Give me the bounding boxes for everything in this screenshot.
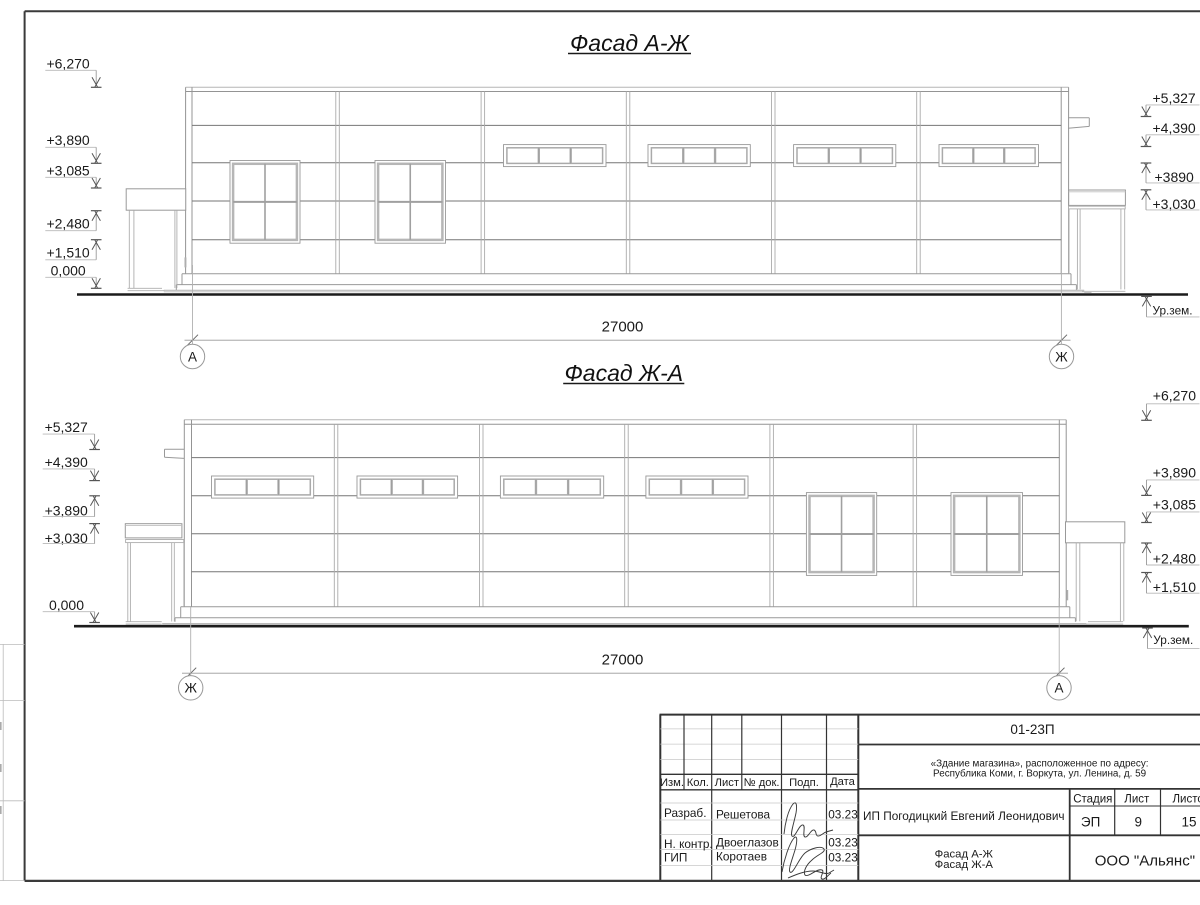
svg-text:№ док.: № док.: [744, 777, 780, 789]
svg-text:Решетова: Решетова: [716, 808, 771, 822]
svg-text:03.23: 03.23: [828, 808, 858, 822]
svg-text:А: А: [188, 349, 197, 364]
svg-text:+5,327: +5,327: [1153, 90, 1196, 106]
svg-text:+6,270: +6,270: [46, 55, 89, 71]
svg-text:Коротаев: Коротаев: [716, 850, 767, 864]
svg-text:+2,480: +2,480: [1153, 551, 1196, 567]
svg-text:Фасад Ж-А: Фасад Ж-А: [935, 859, 994, 871]
svg-text:Стадия: Стадия: [1073, 793, 1112, 805]
svg-text:Ур.зем.: Ур.зем.: [1153, 633, 1193, 647]
svg-text:Фасад А-Ж: Фасад А-Ж: [570, 30, 690, 56]
svg-text:Двоеглазов: Двоеглазов: [716, 835, 779, 849]
svg-text:0,000: 0,000: [49, 597, 84, 613]
svg-text:ЭП: ЭП: [1081, 815, 1100, 830]
svg-text:Фасад Ж-А: Фасад Ж-А: [565, 360, 684, 386]
svg-text:15: 15: [1181, 815, 1196, 830]
svg-text:+5,327: +5,327: [45, 419, 88, 435]
svg-text:Республика Коми, г. Воркута, у: Республика Коми, г. Воркута, ул. Ленина,…: [933, 768, 1147, 779]
svg-text:Лист: Лист: [715, 777, 739, 789]
svg-text:Кол.: Кол.: [687, 777, 709, 789]
svg-text:+2,480: +2,480: [46, 215, 89, 231]
svg-text:ГИП: ГИП: [664, 851, 687, 865]
svg-text:+1,510: +1,510: [1153, 579, 1196, 595]
svg-text:01-23П: 01-23П: [1010, 722, 1054, 737]
svg-text:Дата: Дата: [830, 776, 856, 788]
svg-text:+4,390: +4,390: [45, 454, 88, 470]
svg-text:Н. контр.: Н. контр.: [664, 837, 713, 851]
svg-text:ООО "Альянс": ООО "Альянс": [1095, 852, 1195, 869]
svg-text:Разраб.: Разраб.: [664, 806, 706, 820]
svg-text:+3,890: +3,890: [1153, 464, 1196, 480]
svg-text:Изм.: Изм.: [660, 777, 684, 789]
svg-text:03.23: 03.23: [828, 835, 858, 849]
svg-text:Подп.: Подп.: [789, 777, 819, 789]
svg-text:+1,510: +1,510: [46, 244, 89, 260]
svg-text:+3,085: +3,085: [46, 162, 89, 178]
svg-text:Ур.зем.: Ур.зем.: [1153, 304, 1193, 318]
svg-text:+4,390: +4,390: [1153, 120, 1196, 136]
svg-text:27000: 27000: [602, 319, 644, 336]
svg-text:03.23: 03.23: [828, 851, 858, 865]
svg-text:27000: 27000: [602, 652, 644, 669]
svg-text:+3,085: +3,085: [1153, 497, 1196, 513]
svg-text:А: А: [1054, 681, 1063, 696]
svg-text:+6,270: +6,270: [1153, 388, 1196, 404]
svg-text:ИП Погодицкий Евгений Леонидов: ИП Погодицкий Евгений Леонидович: [863, 809, 1065, 823]
svg-text:0,000: 0,000: [51, 262, 86, 278]
svg-text:Ж: Ж: [1055, 349, 1068, 364]
svg-text:Лист: Лист: [1124, 793, 1150, 805]
svg-text:Листов: Листов: [1173, 793, 1200, 805]
svg-text:9: 9: [1134, 815, 1142, 830]
svg-text:Ж: Ж: [184, 681, 197, 696]
svg-text:+3,890: +3,890: [46, 132, 89, 148]
